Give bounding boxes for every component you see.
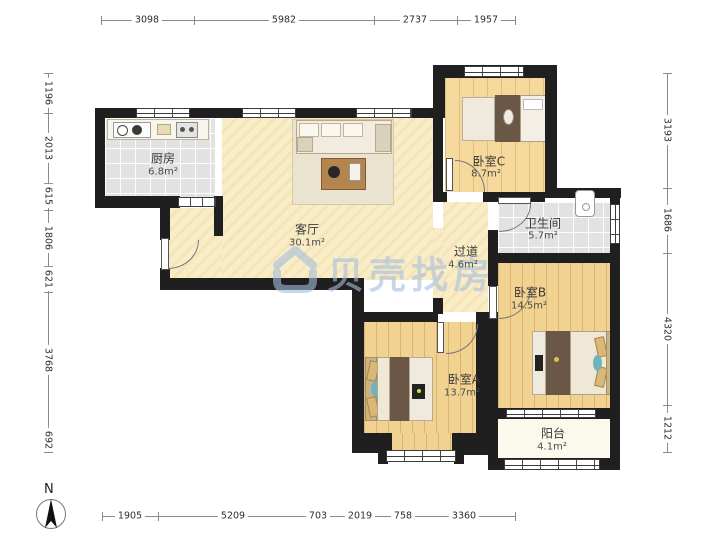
- room-label-kitchen: 厨房: [151, 150, 175, 167]
- wall-segment: [160, 208, 170, 240]
- dimension-tick: [663, 405, 672, 406]
- dimension-tick: [101, 16, 102, 25]
- dimension-value: 1196: [43, 78, 54, 108]
- dimension-value: 2013: [43, 133, 54, 163]
- wall-segment: [433, 298, 443, 314]
- dimension-value: 758: [391, 511, 415, 522]
- wall-segment: [352, 278, 364, 448]
- living-window: [242, 108, 296, 118]
- dimension-tick: [663, 188, 672, 189]
- room-area-bedroom-c: 8.7m²: [471, 169, 501, 180]
- tv-light-icon: [417, 389, 421, 393]
- wall-segment: [545, 65, 557, 196]
- sofa-cushion: [321, 123, 341, 137]
- dimension-value: 3193: [662, 115, 673, 145]
- living-window: [356, 108, 412, 118]
- dimension-tick: [102, 512, 103, 521]
- kitchen-window: [136, 108, 190, 118]
- accent-pillow: [593, 355, 602, 371]
- room-label-bathroom: 卫生间: [525, 215, 561, 232]
- room-area-bathroom: 5.7m²: [528, 231, 558, 242]
- sofa-chaise: [375, 124, 391, 152]
- room-label-bedroom-b: 卧室B: [514, 284, 546, 301]
- stove-burner-icon: [117, 125, 128, 136]
- room-label-living: 客厅: [295, 221, 319, 238]
- bedroom-c-door-leaf: [446, 158, 453, 191]
- dimension-value: 4320: [662, 314, 673, 344]
- wall-segment: [364, 312, 438, 322]
- dimension-tick: [44, 292, 53, 293]
- room-label-hallway: 过道: [454, 243, 478, 260]
- bathroom-door-leaf: [498, 197, 531, 204]
- dimension-tick: [663, 452, 672, 453]
- dimension-value: 1686: [662, 205, 673, 235]
- wall-segment: [488, 253, 620, 263]
- dimension-value: 615: [43, 184, 54, 208]
- room-area-bedroom-a: 13.7m²: [444, 388, 480, 399]
- compass-icon: [34, 496, 68, 532]
- dimension-tick: [44, 113, 53, 114]
- room-label-bedroom-c: 卧室C: [473, 153, 505, 170]
- decor-icon: [503, 109, 514, 125]
- stove-burner-icon: [132, 125, 142, 135]
- dimension-tick: [158, 512, 159, 521]
- sofa-armrest: [297, 137, 313, 152]
- room-area-balcony: 4.1m²: [537, 442, 567, 453]
- kettle-icon: [328, 166, 340, 178]
- dimension-tick: [194, 16, 195, 25]
- bedroom-b-wardrobe: [546, 331, 570, 395]
- compass-north-label: N: [44, 482, 54, 497]
- dimension-tick: [44, 210, 53, 211]
- dimension-value: 2019: [345, 511, 375, 522]
- dimension-tick: [374, 16, 375, 25]
- wall-segment: [95, 108, 105, 208]
- room-area-living: 30.1m²: [289, 238, 325, 249]
- bed-pillow: [523, 99, 543, 110]
- dimension-value: 1957: [471, 15, 501, 26]
- dimension-tick: [515, 512, 516, 521]
- dimension-value: 3098: [132, 15, 162, 26]
- bedroom-a-duvet: [390, 357, 409, 421]
- dimension-value: 5209: [218, 511, 248, 522]
- dimension-value: 692: [43, 428, 54, 452]
- dimension-value: 1905: [115, 511, 145, 522]
- bathroom-window: [610, 204, 620, 244]
- dimension-value: 3768: [43, 345, 54, 375]
- dimension-tick: [44, 73, 53, 74]
- dimension-tick: [663, 73, 672, 74]
- balcony-sliding-window: [506, 409, 596, 418]
- decor-icon: [554, 357, 559, 362]
- wall-segment: [433, 118, 443, 202]
- dimension-value: 2737: [400, 15, 430, 26]
- sink-basin-icon: [189, 127, 194, 132]
- sofa-cushion: [299, 123, 319, 137]
- sofa-cushion: [343, 123, 363, 137]
- tv-icon: [535, 355, 543, 371]
- bedroom-a-door-leaf: [437, 322, 444, 353]
- bedroom-a-mattress: [377, 357, 390, 421]
- bedroom-c-nightstand: [462, 97, 495, 141]
- tray-icon: [349, 163, 361, 181]
- balcony-window: [504, 459, 600, 470]
- dimension-tick: [663, 253, 672, 254]
- wall-segment: [488, 319, 498, 419]
- room-area-hallway: 4.6m²: [448, 260, 478, 271]
- floorplan-canvas: 厨房 6.8m² 客厅 30.1m² 卧室C 8.7m² 卫生间 5.7m² 过…: [0, 0, 720, 540]
- kitchen-sliding-door: [178, 197, 216, 207]
- wall-segment: [95, 196, 180, 208]
- drain-icon: [582, 203, 590, 211]
- dimension-line-top: [101, 20, 515, 21]
- room-label-bedroom-a: 卧室A: [448, 371, 480, 388]
- cutting-board-icon: [157, 124, 171, 135]
- beike-logo-icon: [268, 242, 322, 296]
- dimension-value: 1212: [662, 413, 673, 443]
- dimension-value: 621: [43, 267, 54, 291]
- dimension-value: 5982: [269, 15, 299, 26]
- dimension-tick: [515, 16, 516, 25]
- room-label-balcony: 阳台: [541, 425, 565, 442]
- room-area-bedroom-b: 14.5m²: [511, 301, 547, 312]
- bay-window: [386, 450, 456, 462]
- room-area-kitchen: 6.8m²: [148, 167, 178, 178]
- dimension-value: 3360: [449, 511, 479, 522]
- wall-segment: [433, 192, 447, 202]
- dimension-tick: [44, 452, 53, 453]
- dimension-value: 703: [306, 511, 330, 522]
- dimension-line-left: [48, 73, 49, 452]
- bedroom-c-window: [464, 66, 524, 77]
- sink-basin-icon: [180, 127, 185, 132]
- dimension-tick: [457, 16, 458, 25]
- dimension-value: 1806: [43, 223, 54, 253]
